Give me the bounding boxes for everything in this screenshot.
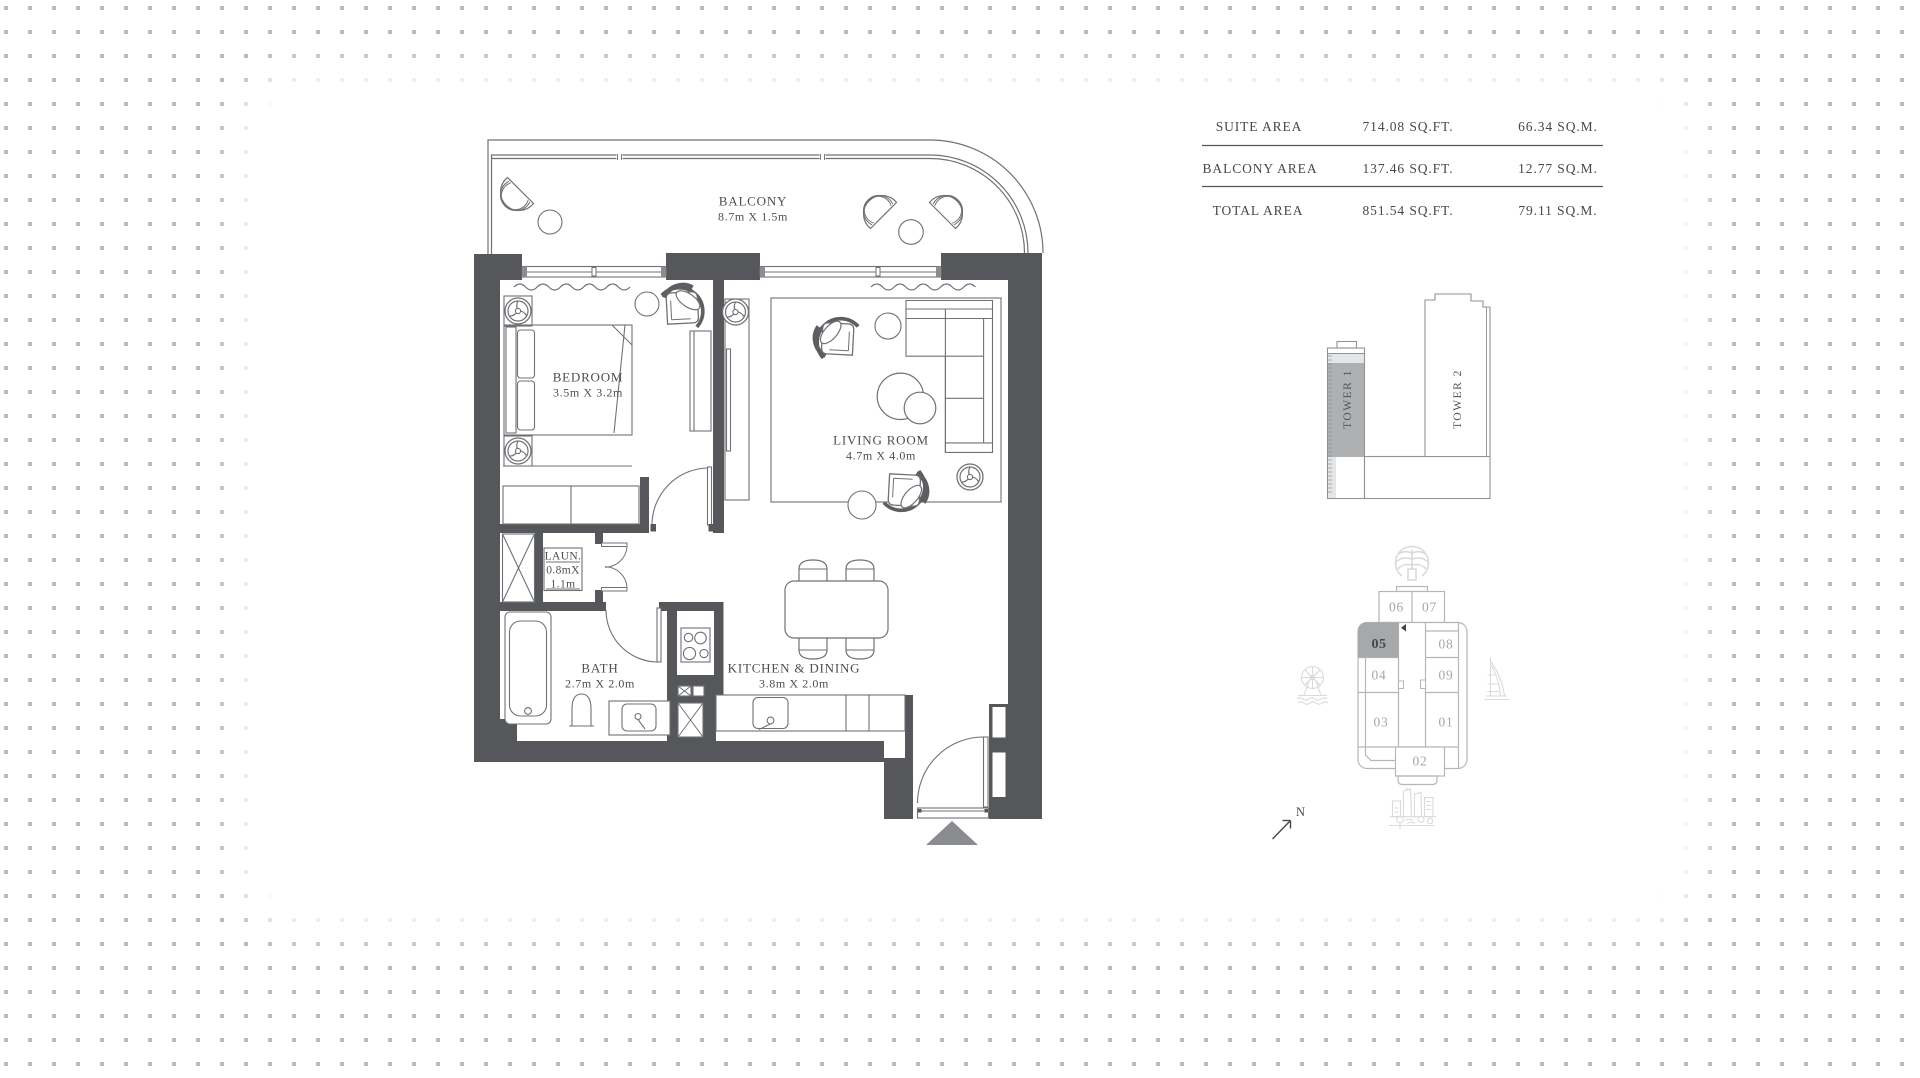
- svg-text:KITCHEN & DINING: KITCHEN & DINING: [728, 661, 861, 676]
- svg-text:3.5m X 3.2m: 3.5m X 3.2m: [553, 386, 623, 400]
- svg-text:08: 08: [1438, 637, 1453, 652]
- svg-text:TOWER 1: TOWER 1: [1342, 369, 1354, 429]
- svg-text:04: 04: [1371, 668, 1386, 683]
- svg-text:SUITE AREA: SUITE AREA: [1216, 119, 1303, 134]
- svg-text:LAUN.: LAUN.: [545, 551, 582, 563]
- svg-text:2.7m X 2.0m: 2.7m X 2.0m: [565, 677, 635, 691]
- svg-text:137.46 SQ.FT.: 137.46 SQ.FT.: [1363, 161, 1454, 176]
- svg-text:714.08 SQ.FT.: 714.08 SQ.FT.: [1363, 119, 1454, 134]
- svg-text:79.11 SQ.M.: 79.11 SQ.M.: [1518, 203, 1597, 218]
- svg-text:TOTAL AREA: TOTAL AREA: [1213, 203, 1304, 218]
- svg-text:3.8m X 2.0m: 3.8m X 2.0m: [759, 677, 829, 691]
- svg-text:05: 05: [1372, 637, 1387, 652]
- svg-text:0.8mX: 0.8mX: [546, 565, 580, 577]
- svg-text:03: 03: [1373, 715, 1388, 730]
- svg-text:LIVING ROOM: LIVING ROOM: [833, 433, 929, 448]
- svg-text:02: 02: [1412, 754, 1427, 769]
- svg-text:8.7m X 1.5m: 8.7m X 1.5m: [718, 210, 788, 224]
- svg-text:TOWER 2: TOWER 2: [1452, 369, 1464, 429]
- svg-text:4.7m X 4.0m: 4.7m X 4.0m: [846, 449, 916, 463]
- svg-text:09: 09: [1438, 668, 1453, 683]
- svg-text:N: N: [1296, 805, 1305, 819]
- svg-text:BALCONY: BALCONY: [719, 194, 787, 209]
- svg-text:06: 06: [1389, 600, 1404, 615]
- svg-text:BALCONY AREA: BALCONY AREA: [1203, 161, 1318, 176]
- svg-text:BATH: BATH: [581, 661, 618, 676]
- svg-text:66.34 SQ.M.: 66.34 SQ.M.: [1518, 119, 1598, 134]
- svg-text:851.54 SQ.FT.: 851.54 SQ.FT.: [1363, 203, 1454, 218]
- svg-text:07: 07: [1422, 600, 1437, 615]
- svg-text:01: 01: [1438, 715, 1453, 730]
- svg-text:12.77 SQ.M.: 12.77 SQ.M.: [1518, 161, 1598, 176]
- svg-text:BEDROOM: BEDROOM: [553, 370, 624, 385]
